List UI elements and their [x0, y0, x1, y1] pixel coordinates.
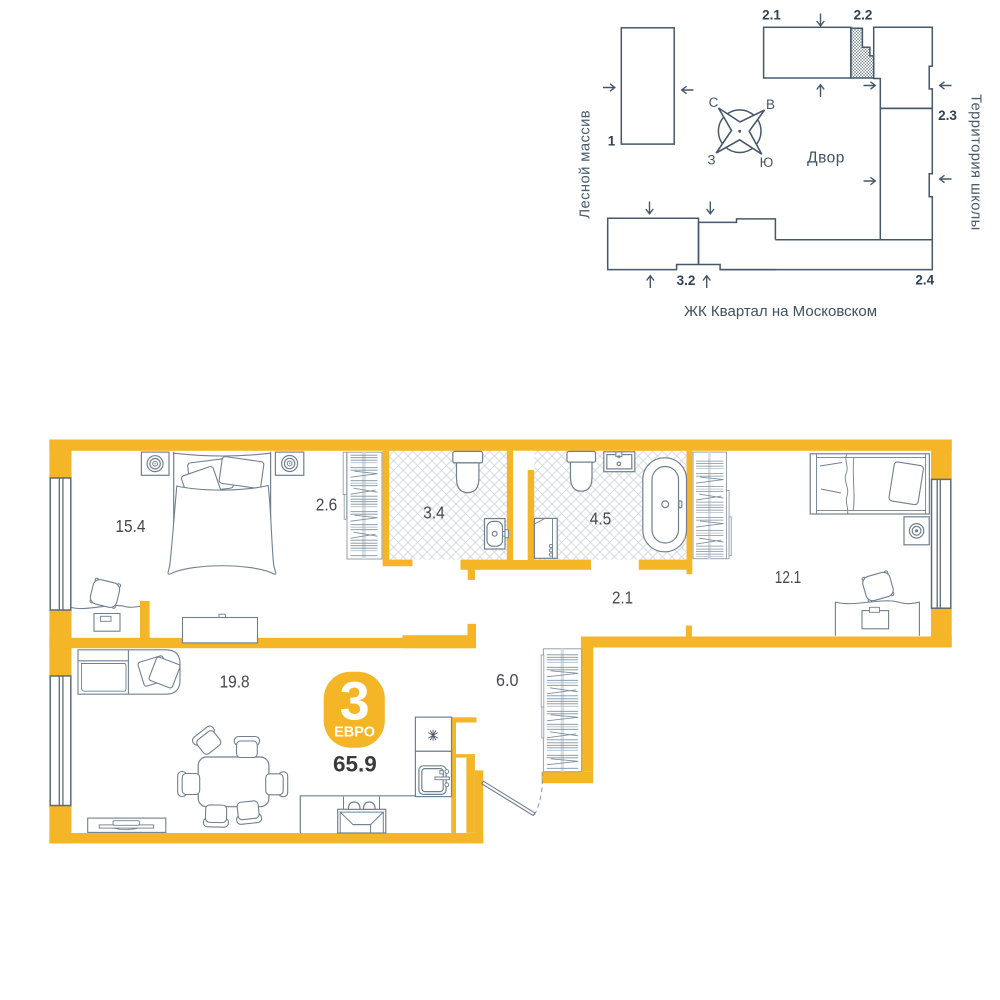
svg-text:65.9: 65.9	[333, 752, 377, 777]
svg-text:Ю: Ю	[760, 155, 774, 170]
svg-text:6.0: 6.0	[496, 670, 519, 690]
svg-text:Территория школы: Территория школы	[968, 94, 984, 231]
svg-text:3.2: 3.2	[677, 273, 696, 288]
svg-text:2.1: 2.1	[612, 587, 633, 607]
svg-text:2.3: 2.3	[938, 108, 957, 123]
svg-text:С: С	[709, 95, 719, 110]
svg-text:12.1: 12.1	[775, 567, 802, 587]
svg-text:Двор: Двор	[807, 150, 845, 167]
svg-text:Лесной массив: Лесной массив	[578, 110, 594, 219]
svg-text:ЖК Квартал на Московском: ЖК Квартал на Московском	[684, 303, 877, 320]
svg-text:15.4: 15.4	[115, 516, 145, 536]
svg-text:4.5: 4.5	[590, 509, 612, 529]
svg-text:3: 3	[340, 672, 370, 732]
svg-text:2.1: 2.1	[762, 8, 781, 23]
svg-text:2.2: 2.2	[854, 8, 873, 23]
svg-text:19.8: 19.8	[220, 672, 250, 692]
svg-text:2.6: 2.6	[316, 494, 338, 514]
svg-text:З: З	[707, 153, 715, 168]
svg-text:1: 1	[608, 134, 616, 149]
svg-text:3.4: 3.4	[423, 503, 445, 523]
svg-text:2.4: 2.4	[915, 273, 934, 288]
svg-text:В: В	[766, 97, 775, 112]
svg-text:ЕВРО: ЕВРО	[334, 724, 375, 740]
